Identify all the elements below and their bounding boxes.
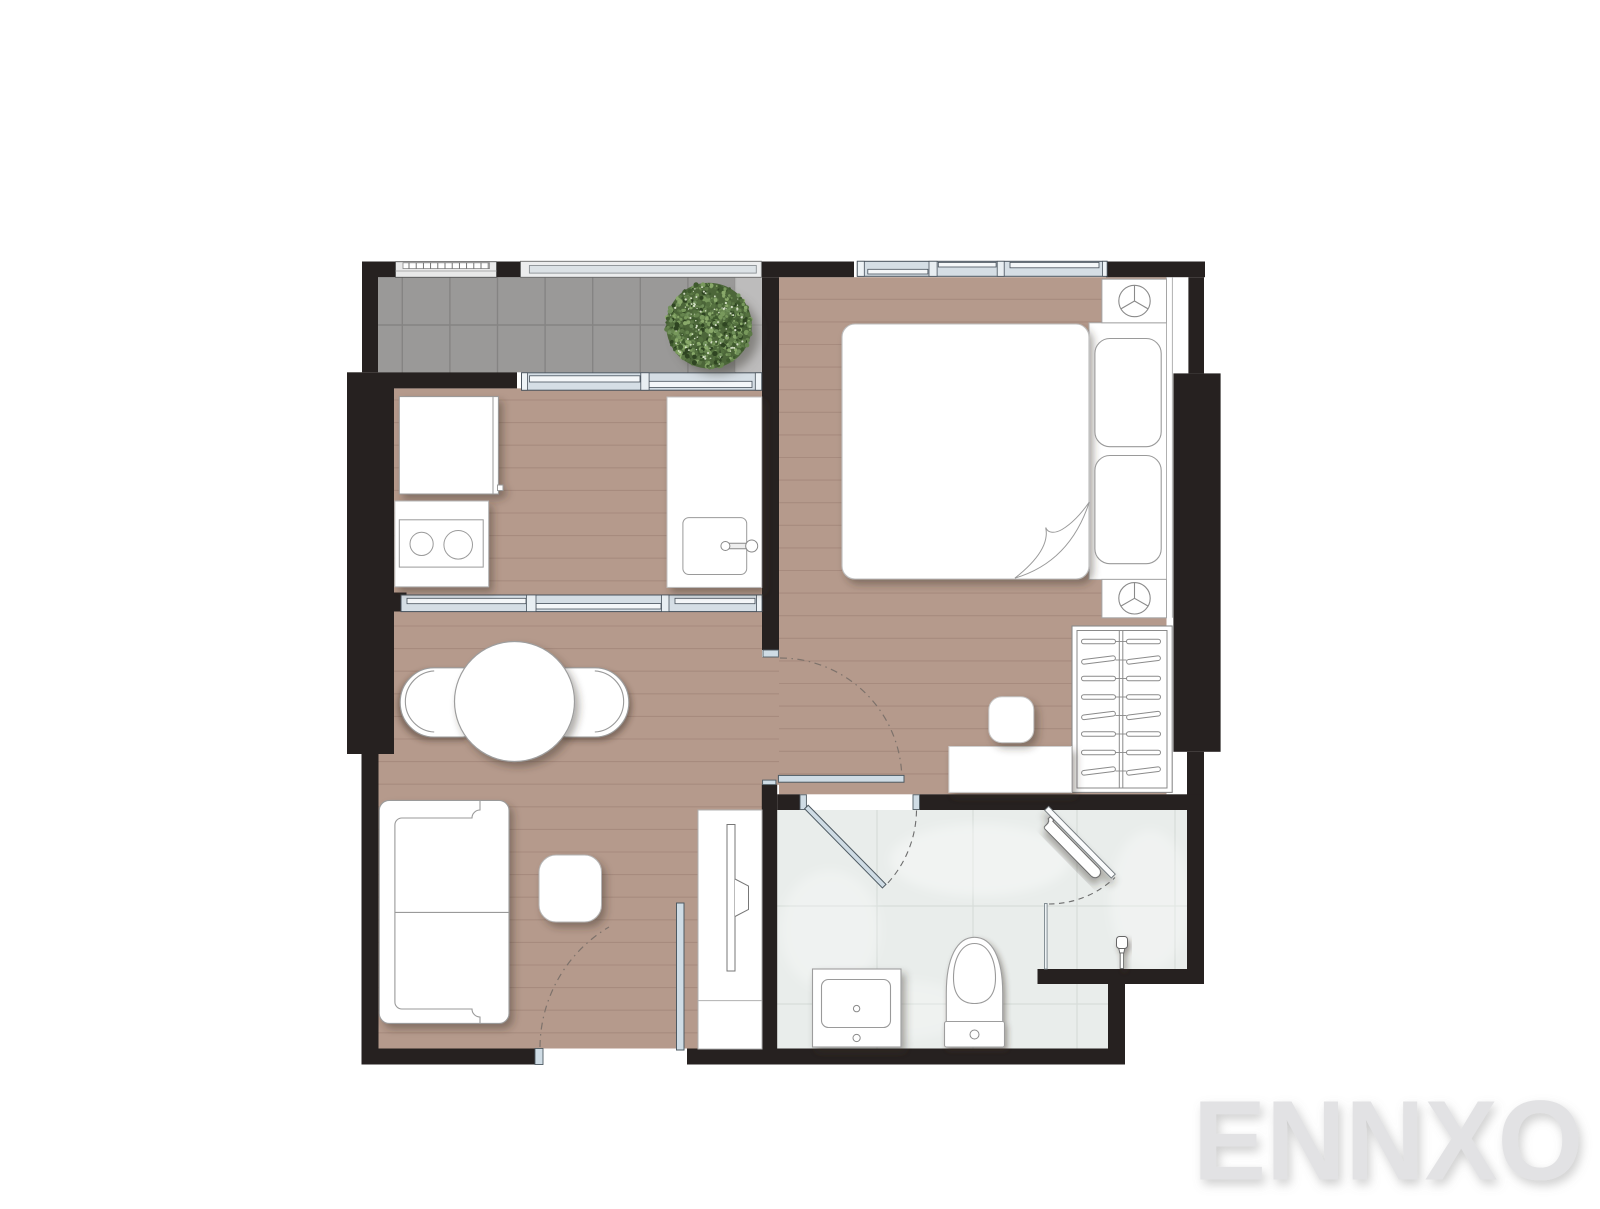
svg-text:ENNXO: ENNXO bbox=[1193, 1078, 1583, 1204]
